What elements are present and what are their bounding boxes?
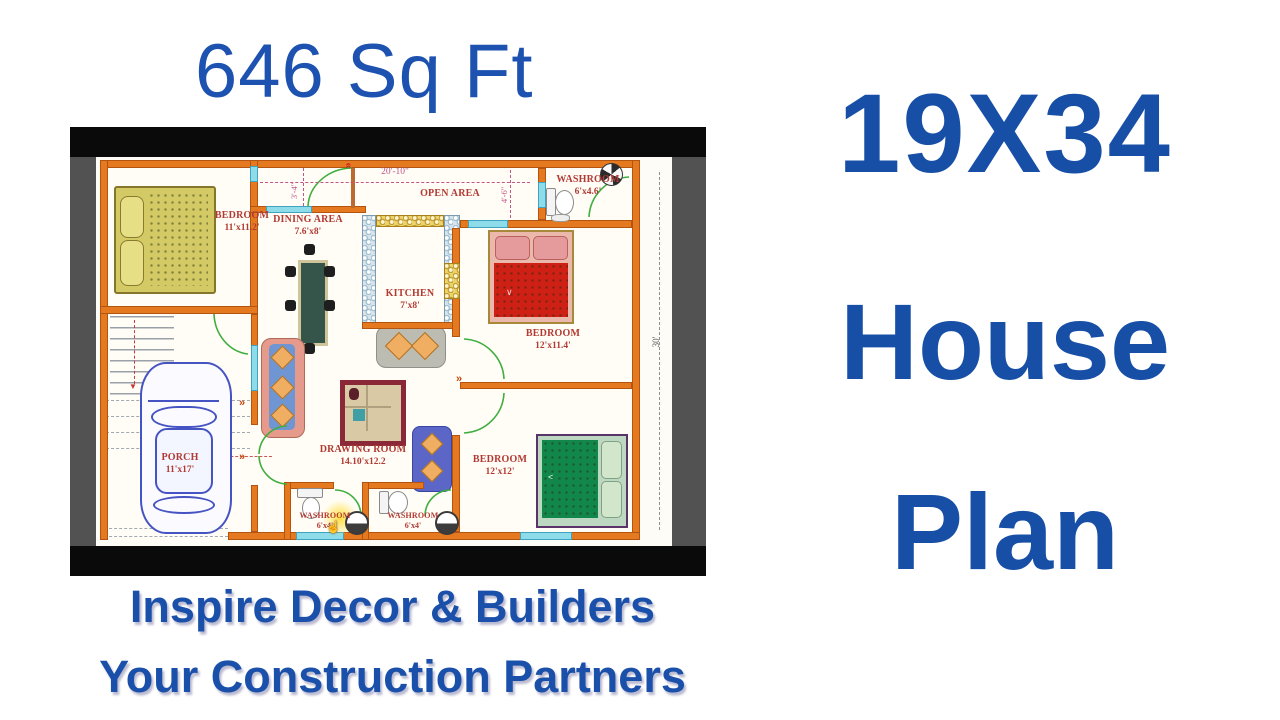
door-arc-entrance-2 [258,455,288,485]
wall-kitchen-top-mosaic [376,215,444,227]
bed-pillow [601,441,622,479]
window-bedroomr [468,220,508,228]
dim-label-right: 4'-6" [499,173,509,217]
porch-open-edge [104,536,228,537]
area-title: 646 Sq Ft [195,28,534,115]
dining-chair [324,266,335,277]
plot-size-line: 19X34 [745,78,1265,190]
wall-bedroomtl-right [250,160,258,314]
wall-outer-right [632,160,640,540]
dim-label-left: 3'-4" [289,169,299,213]
label-drawing-room: DRAWING ROOM 14.10'x12.2 [298,444,428,468]
bed-mattress: ∨ [494,263,568,317]
car-hood-line [148,400,219,402]
label-washroom-b1: WASHROOM 6'x4' [286,511,364,531]
thumbnail-page: 646 Sq Ft 19X34 House Plan Inspire Decor… [0,0,1280,720]
car-windshield [151,406,217,428]
loveseat [376,326,446,368]
hand-cursor-icon: ☝ [326,520,341,534]
label-kitchen: KITCHEN 7'x8' [368,288,452,312]
label-porch: PORCH 11'x17' [146,452,214,476]
door-arc-bedroom-r [462,337,506,381]
center-rug [340,380,406,446]
car-rear-window [153,496,215,514]
bed-red: ∨ [488,230,574,324]
bed-yellow [114,186,216,294]
label-bedroom-br: BEDROOM 12'x12' [456,454,544,478]
bed-green: < [536,434,628,528]
bed-pillow [533,236,568,260]
dining-chair [304,244,315,255]
sofa-cushion [411,332,439,360]
bed-pillow [495,236,530,260]
sofa-cushion [385,332,413,360]
dim-line-left [303,168,304,206]
label-bedroom-r: BEDROOM 12'x11.4' [503,328,603,352]
brand-tagline: Your Construction Partners [0,652,785,702]
label-washroom-b2: WASHROOM 6'x4' [370,511,456,531]
stair-arrow-icon: ▼ [129,382,137,391]
door-arrow-icon: » [344,162,355,168]
bed-pillow [120,196,144,238]
video-edge-left [70,157,96,546]
wall-bedroombr-top [460,382,632,389]
bed-mattress: < [542,440,598,518]
house-word: House [745,288,1265,396]
wall-washrooms-top-right [362,482,424,489]
dining-chair [324,300,335,311]
door-arrow-icon: » [239,452,245,463]
car [140,362,232,534]
floor-plan: 20'-10" 3'-4" 4'-6" OPEN AREA BEDROOM 11… [100,160,640,540]
plan-word: Plan [745,478,1265,586]
sofa-long [261,338,305,438]
rug-grid [366,385,368,431]
stair-direction-line [134,320,135,384]
label-dining: DINING AREA 7.6'x8' [258,214,358,238]
label-open-area: OPEN AREA [400,188,500,201]
rug-tile [353,409,365,421]
door-arrow-icon: » [456,374,462,385]
rug-grid [345,406,391,408]
letterbox-top [70,127,706,157]
height-dimension-label: 30' [651,322,661,362]
width-dimension-line [260,182,530,183]
dining-chair [285,266,296,277]
dining-chair [285,300,296,311]
door-arc-bedroom-br [462,391,506,435]
door-arrow-icon: » [239,398,245,409]
wall-porch-right-lower [251,485,258,532]
floor-plan-screenshot: 30' [70,127,706,576]
letterbox-bottom [70,546,706,576]
rug-motif [349,388,359,400]
dim-line-right [510,170,511,218]
door-arc-entrance-1 [258,425,288,455]
window-bedroomtl [250,166,258,182]
bed-mattress [148,192,208,286]
wall-kitchen-bottom [362,322,460,329]
bed-pillow [601,481,622,518]
video-edge-right [672,157,706,546]
brand-name: Inspire Decor & Builders [0,582,785,632]
bed-pillow [120,240,144,286]
wall-outer-left [100,160,108,540]
toilet-base [551,214,570,222]
label-washroom-tr: WASHROOM 6'x4.6' [543,174,633,198]
door-arc-bedroom-tl [212,312,250,356]
dining-chair [304,343,315,354]
window-drawing [251,345,258,391]
window-bottom-right [520,532,572,540]
